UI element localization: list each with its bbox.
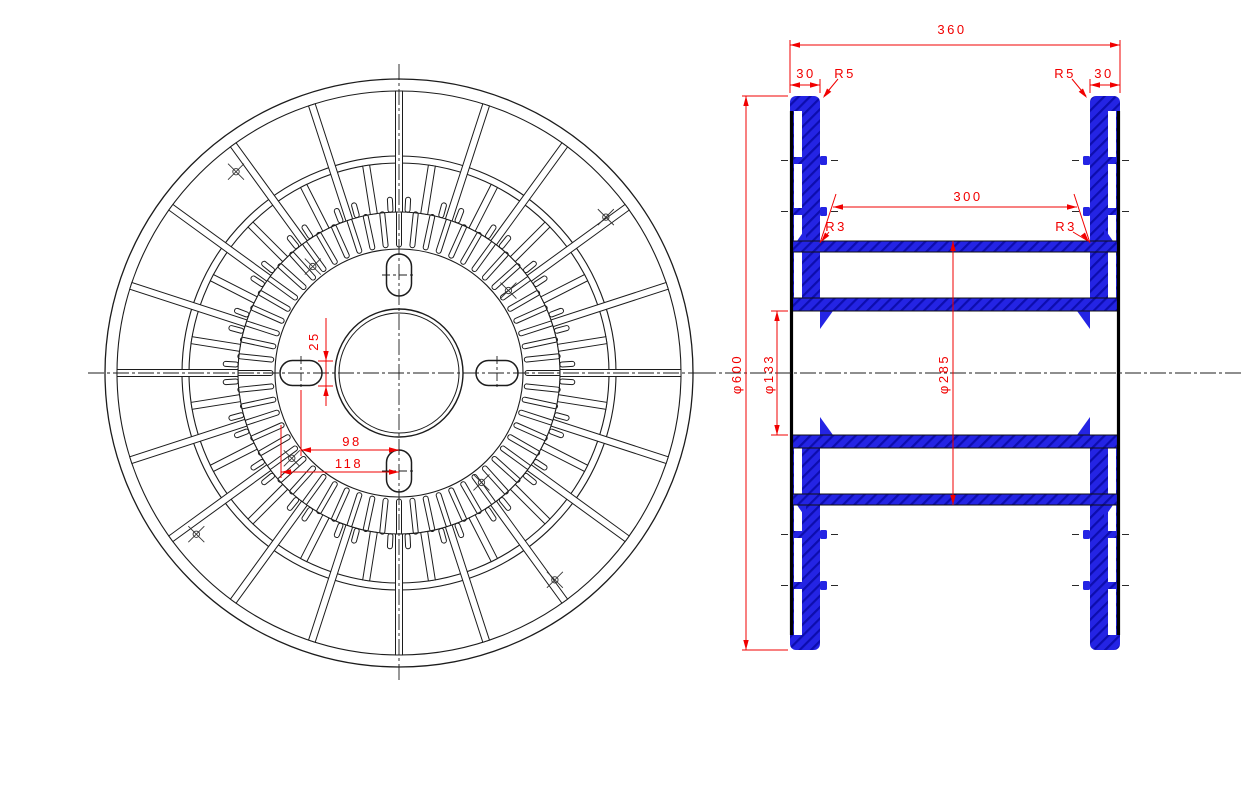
dim-fillet-right: R3: [1055, 219, 1077, 234]
dim-corner-radius-right: R5: [1054, 66, 1076, 81]
dim-barrel-length: 300: [953, 189, 982, 204]
dim-flange-wall-right: 30: [1094, 66, 1113, 81]
dim-flange-wall-left: 30: [796, 66, 815, 81]
dim-bore-diameter: φ133: [761, 354, 776, 394]
dim-overall-width: 360: [937, 22, 966, 37]
dim-corner-radius-left: R5: [834, 66, 856, 81]
dim-slot-width: 25: [306, 331, 321, 350]
front-view-flange-face: [88, 64, 708, 682]
dim-flange-diameter: φ600: [729, 354, 744, 394]
dimension-linework: [281, 40, 1120, 650]
dim-barrel-diameter: φ285: [936, 354, 951, 394]
side-view-section: [700, 96, 1242, 650]
drawing-canvas: 360 30 R5 R5 30 300 R3 R3 φ600 φ133 φ285…: [0, 0, 1247, 790]
dim-fillet-left: R3: [825, 219, 847, 234]
dim-slot-center-offset: 98: [342, 434, 361, 449]
cad-drawing: 360 30 R5 R5 30 300 R3 R3 φ600 φ133 φ285…: [0, 0, 1247, 790]
dim-slot-outer-offset: 118: [335, 456, 363, 471]
